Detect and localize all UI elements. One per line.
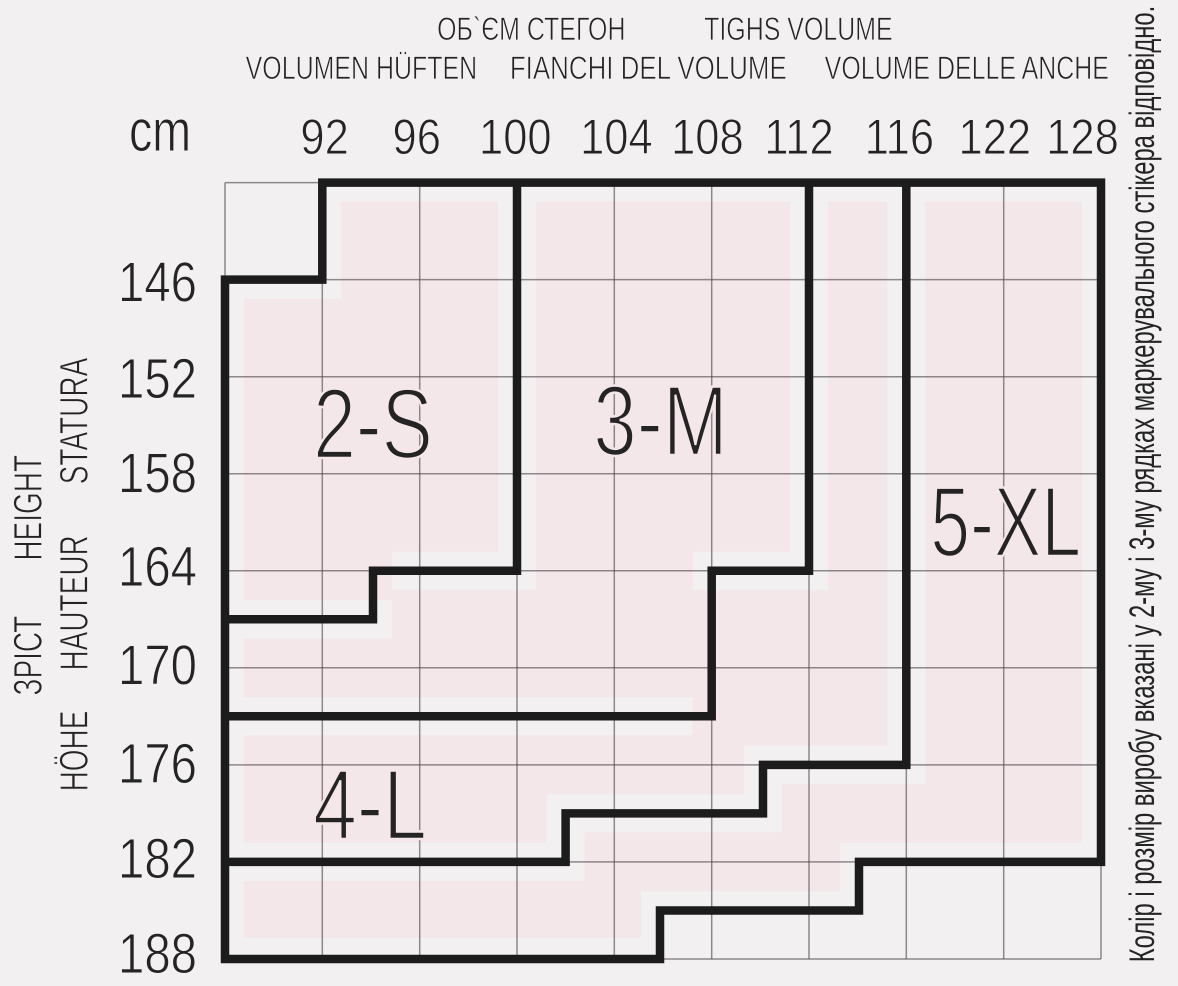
svg-text:152: 152	[118, 348, 197, 411]
svg-text:HÖHE: HÖHE	[53, 711, 97, 792]
svg-text:158: 158	[118, 443, 197, 506]
svg-text:170: 170	[118, 635, 197, 698]
svg-text:HAUTEUR: HAUTEUR	[53, 535, 97, 670]
svg-text:ОБ`ЄМ СТЕГОН: ОБ`ЄМ СТЕГОН	[437, 12, 625, 48]
svg-text:Колір і розмір виробу вказані: Колір і розмір виробу вказані у 2-му і 3…	[1124, 6, 1163, 962]
svg-text:HEIGHT: HEIGHT	[7, 455, 51, 561]
svg-text:3-M: 3-M	[593, 365, 728, 476]
svg-text:182: 182	[118, 828, 197, 891]
svg-text:cm: cm	[129, 99, 191, 164]
svg-text:146: 146	[118, 252, 197, 315]
svg-text:VOLUMEN HÜFTEN: VOLUMEN HÜFTEN	[246, 51, 478, 87]
svg-text:116: 116	[865, 109, 934, 164]
svg-text:TIGHS VOLUME: TIGHS VOLUME	[704, 12, 893, 48]
svg-text:FIANCHI DEL VOLUME: FIANCHI DEL VOLUME	[510, 52, 787, 87]
svg-text:188: 188	[118, 923, 197, 986]
svg-text:104: 104	[580, 109, 653, 164]
svg-text:4-L: 4-L	[313, 749, 427, 860]
svg-text:108: 108	[671, 109, 744, 164]
svg-text:176: 176	[118, 733, 197, 796]
svg-text:96: 96	[393, 109, 441, 164]
svg-text:100: 100	[479, 109, 552, 164]
svg-text:VOLUME DELLE ANCHE: VOLUME DELLE ANCHE	[825, 51, 1109, 87]
svg-text:128: 128	[1046, 109, 1119, 164]
svg-text:112: 112	[764, 109, 833, 164]
svg-text:164: 164	[118, 536, 197, 599]
svg-text:STATURA: STATURA	[53, 358, 97, 484]
svg-text:ЗРІСТ: ЗРІСТ	[7, 616, 51, 696]
svg-text:2-S: 2-S	[313, 369, 433, 480]
svg-text:5-XL: 5-XL	[930, 467, 1081, 577]
svg-text:92: 92	[300, 109, 348, 164]
svg-text:122: 122	[959, 109, 1032, 164]
